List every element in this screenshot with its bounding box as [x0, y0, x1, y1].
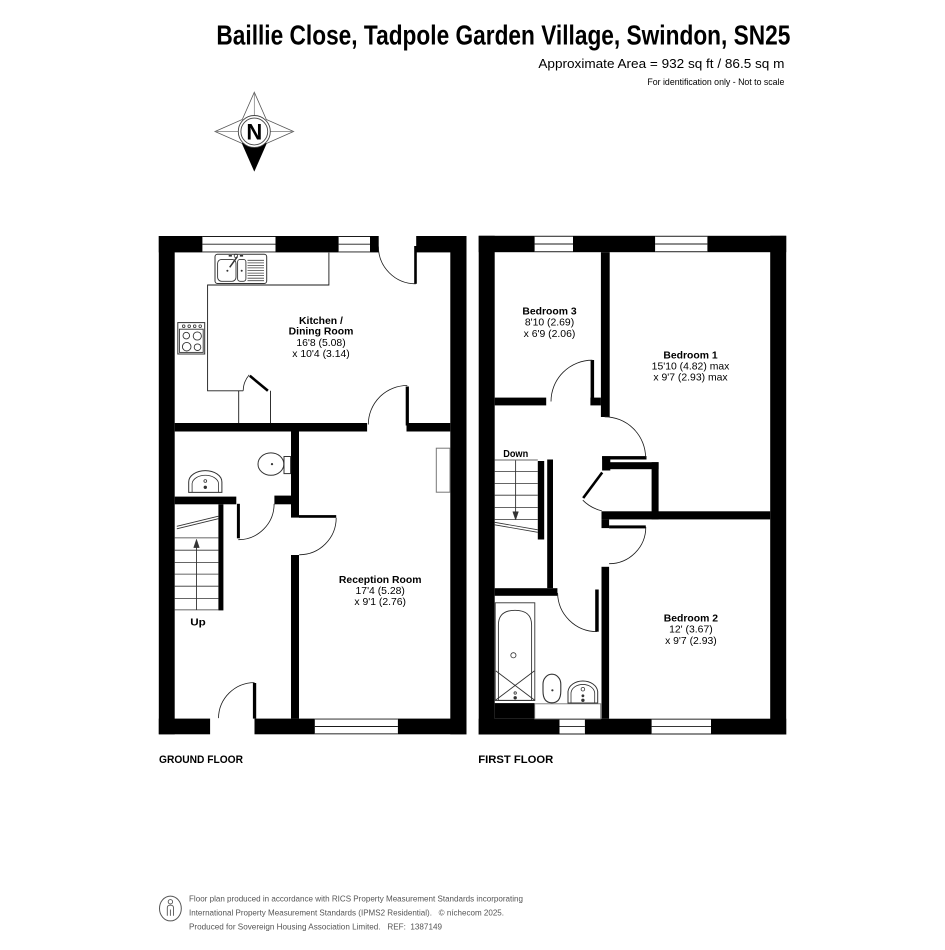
svg-text:Produced for Sovereign Housing: Produced for Sovereign Housing Associati…: [189, 922, 442, 932]
svg-text:8'10 (2.69): 8'10 (2.69): [525, 318, 574, 329]
svg-text:Floor plan produced in accorda: Floor plan produced in accordance with R…: [189, 894, 523, 904]
svg-text:Approximate Area = 932 sq ft /: Approximate Area = 932 sq ft / 86.5 sq m: [538, 56, 784, 71]
svg-text:Dining Room: Dining Room: [289, 326, 354, 337]
svg-text:x 6'9 (2.06): x 6'9 (2.06): [524, 329, 576, 340]
svg-text:GROUND FLOOR: GROUND FLOOR: [159, 754, 243, 766]
svg-text:Baillie Close, Tadpole Garden: Baillie Close, Tadpole Garden Village, S…: [216, 19, 790, 50]
svg-text:Down: Down: [503, 449, 528, 460]
svg-text:Bedroom 3: Bedroom 3: [522, 307, 576, 318]
svg-text:For identification only - Not: For identification only - Not to scale: [647, 76, 784, 87]
svg-text:Reception Room: Reception Room: [339, 575, 422, 586]
svg-text:x 10'4 (3.14): x 10'4 (3.14): [292, 349, 349, 360]
svg-text:Kitchen /: Kitchen /: [299, 316, 343, 327]
svg-text:FIRST FLOOR: FIRST FLOOR: [478, 754, 553, 766]
svg-text:Up: Up: [190, 618, 206, 629]
svg-text:x 9'7 (2.93): x 9'7 (2.93): [665, 636, 717, 647]
svg-text:International Property Measure: International Property Measurement Stand…: [189, 908, 504, 918]
svg-text:N: N: [246, 120, 262, 145]
svg-text:17'4 (5.28): 17'4 (5.28): [356, 586, 405, 597]
svg-text:x 9'1 (2.76): x 9'1 (2.76): [354, 597, 406, 608]
svg-text:12' (3.67): 12' (3.67): [669, 625, 713, 636]
svg-text:Bedroom 1: Bedroom 1: [663, 351, 717, 362]
svg-text:15'10 (4.82) max: 15'10 (4.82) max: [652, 362, 730, 373]
svg-text:Bedroom 2: Bedroom 2: [664, 614, 718, 625]
svg-text:16'8 (5.08): 16'8 (5.08): [296, 338, 345, 349]
svg-text:x 9'7 (2.93) max: x 9'7 (2.93) max: [653, 373, 728, 384]
